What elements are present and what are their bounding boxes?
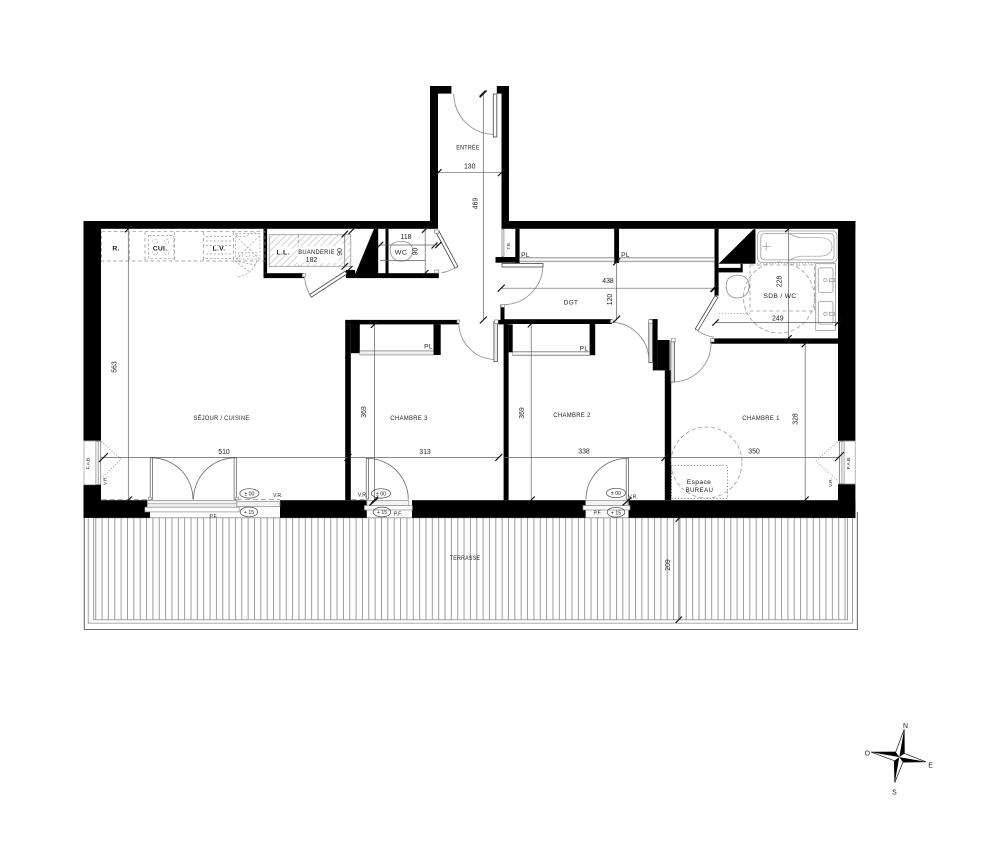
svg-text:+ 15: + 15 (244, 510, 254, 516)
svg-text:182: 182 (306, 257, 318, 264)
svg-text:WC: WC (395, 250, 408, 257)
svg-text:249: 249 (772, 316, 784, 323)
svg-text:ENTRÉE: ENTRÉE (456, 143, 480, 152)
svg-text:V.R.: V.R. (828, 478, 834, 487)
svg-text:R.: R. (112, 246, 119, 253)
svg-text:+ 15: + 15 (377, 510, 387, 516)
svg-text:P.F.: P.F. (394, 512, 402, 518)
svg-text:O: O (865, 751, 871, 758)
svg-text:F.A.B.: F.A.B. (86, 456, 92, 469)
svg-text:N: N (903, 723, 908, 730)
svg-text:P.F.: P.F. (593, 511, 601, 517)
svg-text:S: S (892, 789, 897, 796)
svg-text:± 00: ± 00 (611, 491, 621, 497)
svg-text:369: 369 (519, 407, 526, 419)
svg-text:369: 369 (361, 406, 368, 418)
svg-text:DGT: DGT (564, 300, 579, 307)
svg-text:120: 120 (607, 294, 614, 306)
svg-text:V.R.: V.R. (273, 493, 283, 499)
svg-text:PL: PL (580, 346, 589, 353)
svg-text:SÉJOUR / CUISINE: SÉJOUR / CUISINE (194, 413, 250, 422)
svg-text:L.V.: L.V. (213, 246, 226, 253)
svg-text:PL: PL (521, 252, 530, 259)
svg-text:TERRASSE: TERRASSE (450, 555, 481, 562)
svg-text:PL: PL (424, 344, 433, 351)
svg-text:L.L.: L.L. (277, 250, 290, 257)
svg-text:CUI.: CUI. (153, 246, 167, 253)
svg-text:V.R.: V.R. (358, 493, 368, 499)
svg-text:313: 313 (419, 449, 431, 456)
svg-text:E: E (928, 762, 933, 769)
svg-text:228: 228 (777, 276, 784, 288)
svg-text:130: 130 (464, 164, 476, 171)
svg-text:CHAMBRE 3: CHAMBRE 3 (390, 415, 428, 422)
svg-text:PL: PL (621, 252, 630, 259)
svg-text:510: 510 (218, 449, 230, 456)
svg-text:90: 90 (413, 248, 420, 256)
svg-text:90: 90 (337, 248, 344, 256)
svg-text:Espace: Espace (687, 479, 712, 486)
svg-text:± 00: ± 00 (244, 492, 254, 498)
svg-text:438: 438 (602, 278, 614, 285)
svg-text:469: 469 (473, 198, 480, 210)
svg-text:P.F.: P.F. (209, 514, 217, 520)
svg-text:328: 328 (793, 413, 800, 425)
svg-text:F.A.B.: F.A.B. (846, 456, 852, 469)
svg-text:V.R.: V.R. (102, 476, 108, 485)
svg-text:BUANDERIE: BUANDERIE (298, 249, 335, 256)
svg-text:+ 15: + 15 (611, 510, 621, 516)
svg-text:350: 350 (748, 449, 760, 456)
svg-text:T.E.: T.E. (506, 241, 512, 249)
svg-text:209: 209 (665, 559, 672, 571)
svg-text:563: 563 (112, 361, 119, 373)
svg-text:CHAMBRE 1: CHAMBRE 1 (742, 415, 780, 422)
svg-text:118: 118 (401, 234, 412, 241)
svg-text:BUREAU: BUREAU (686, 487, 714, 494)
svg-text:± 00: ± 00 (376, 492, 386, 498)
svg-text:338: 338 (578, 449, 590, 456)
svg-text:CHAMBRE 2: CHAMBRE 2 (553, 412, 591, 419)
svg-text:V.R.: V.R. (628, 495, 638, 501)
svg-text:SDB / WC: SDB / WC (764, 293, 797, 300)
